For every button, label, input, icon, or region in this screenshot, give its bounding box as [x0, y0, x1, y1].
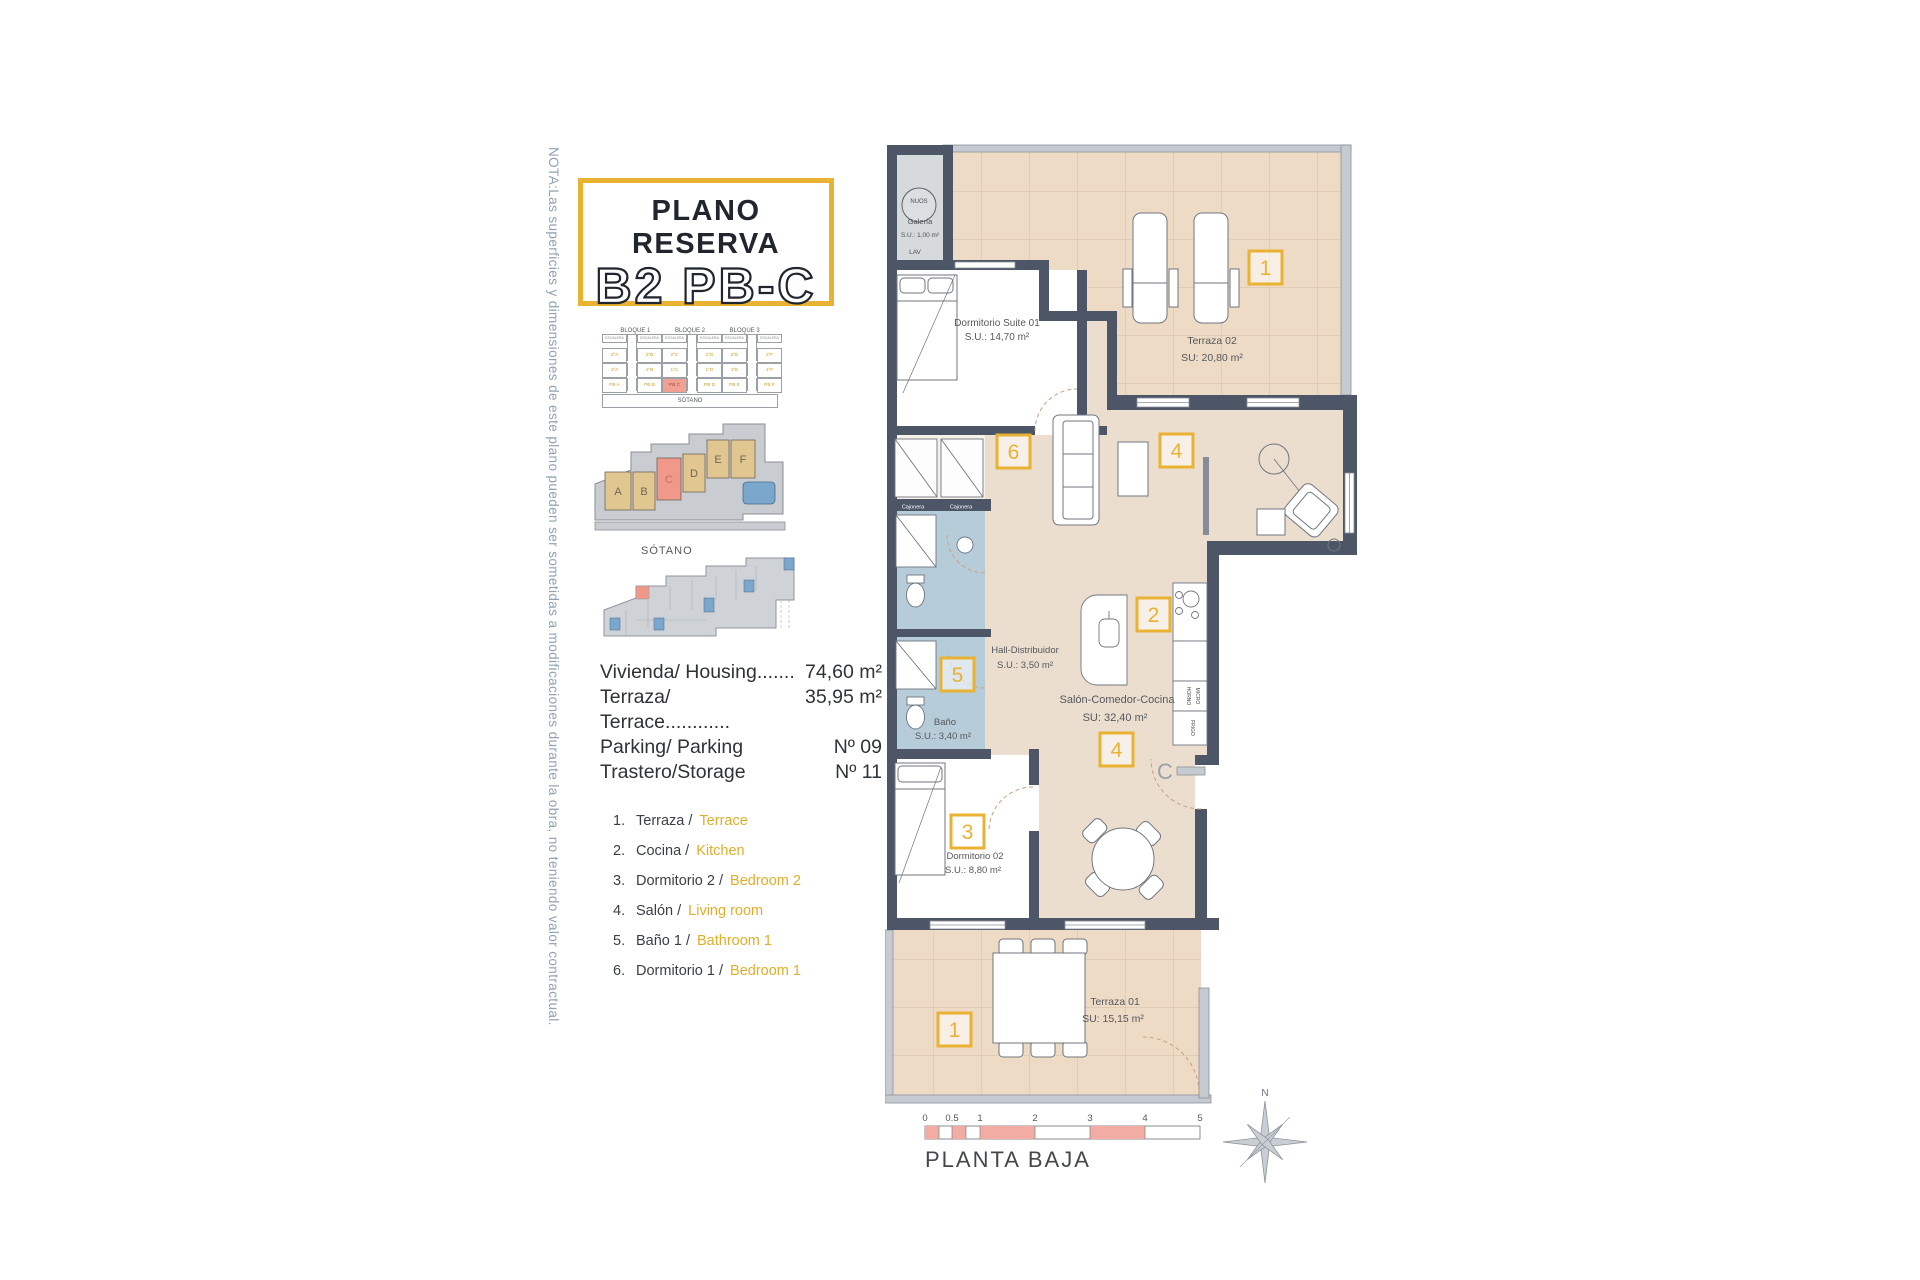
bano-area: S.U.: 3,40 m²	[915, 731, 971, 742]
svg-text:3: 3	[1087, 1113, 1092, 1124]
compass-n: N	[1261, 1088, 1268, 1099]
areas-summary: Vivienda/ Housing.......74,60 m² Terraza…	[600, 660, 882, 785]
unit-matrix-row: 2ºA 2ºB2ºC 2ºD2ºE 2ºF	[602, 348, 778, 363]
scale-bar: 0 0.5 1 2 3 4 5	[922, 1113, 1202, 1139]
basin	[957, 537, 973, 553]
suite-pillow	[900, 278, 925, 293]
cajonera-label-2: Cajonera	[950, 505, 973, 511]
unit-matrix-row: PB A PB BPB C PB DPB E PB F	[602, 378, 778, 393]
island-sink	[1099, 619, 1119, 647]
unit-b-letter: B	[640, 486, 647, 498]
badge-terraza1: 1	[938, 1013, 971, 1046]
terraza2-area: SU: 20,80 m²	[1181, 352, 1243, 364]
frigo-label: FRIGO	[1189, 720, 1195, 736]
floor-plan: NUOS Galería S.U.: 1,00 m² LAV Dormitori…	[885, 143, 1380, 1183]
legend-item-dormitorio1: 6.Dormitorio 1 /Bedroom 1	[613, 963, 801, 979]
wc-tank	[907, 575, 924, 583]
galeria-area: S.U.: 1,00 m²	[901, 232, 940, 239]
svg-text:3: 3	[962, 821, 974, 844]
horno-label: HORNO	[1185, 687, 1191, 706]
badge-bano: 5	[941, 658, 974, 691]
suite-pillow	[928, 278, 953, 293]
pool	[743, 482, 775, 504]
basement-key: SÓTANO	[596, 540, 811, 648]
galeria-brand: NUOS	[910, 199, 927, 205]
wc-bowl	[907, 705, 925, 729]
unit-e-letter: E	[714, 454, 721, 466]
legend-item-terraza: 1.Terraza /Terrace	[613, 813, 801, 829]
terraza1-name: Terraza 01	[1090, 996, 1140, 1008]
galeria-name: Galería	[908, 217, 933, 226]
salon-name: Salón-Comedor-Cocina	[1060, 694, 1176, 706]
svg-text:2: 2	[1148, 604, 1160, 627]
svg-text:6: 6	[1008, 441, 1020, 464]
badge-cocina: 2	[1137, 598, 1170, 631]
terraza2-name: Terraza 02	[1187, 335, 1237, 347]
wc-tank	[907, 697, 924, 705]
legend-item-cocina: 2.Cocina /Kitchen	[613, 843, 801, 859]
unit-matrix: BLOQUE 1 BLOQUE 2 BLOQUE 3 ESCALERA ESCA…	[602, 328, 778, 408]
hall-area: S.U.: 3,50 m²	[997, 660, 1053, 671]
terrace1-dining	[993, 939, 1087, 1057]
svg-text:1: 1	[977, 1113, 982, 1124]
floor-plan-sheet: NOTA:Las superficies y dimensiones de es…	[0, 0, 1920, 1280]
micro-label: MICRO	[1194, 688, 1200, 705]
unit-f-letter: F	[740, 454, 747, 466]
badge-dorm2: 3	[951, 815, 984, 848]
storage-highlight	[636, 586, 649, 599]
site-road-strip	[595, 522, 785, 530]
disclaimer-note: NOTA:Las superficies y dimensiones de es…	[546, 147, 561, 1157]
svg-text:1: 1	[949, 1019, 961, 1042]
bano-name: Baño	[934, 717, 956, 728]
svg-text:1: 1	[1260, 257, 1272, 280]
unit-matrix-col-headers: ESCALERA ESCALERA ESCALERA ESCALERA ESCA…	[602, 334, 778, 348]
legend-item-salon: 4.Salón /Living room	[613, 903, 801, 919]
legend-item-bano: 5.Baño 1 /Bathroom 1	[613, 933, 801, 949]
title-box: PLANO RESERVA B2 PB-C	[578, 178, 834, 306]
site-plan-key: A B C D E F	[593, 422, 798, 540]
area-row-storage: Trastero/StorageNº 11	[600, 760, 882, 785]
room-legend: 1.Terraza /Terrace 2.Cocina /Kitchen 3.D…	[613, 813, 801, 993]
svg-text:5: 5	[1197, 1113, 1202, 1124]
legend-item-dormitorio2: 3.Dormitorio 2 /Bedroom 2	[613, 873, 801, 889]
badge-suite: 6	[997, 435, 1030, 468]
cajonera-label-1: Cajonera	[902, 505, 925, 511]
sotano-row: SÓTANO	[602, 394, 778, 408]
dorm2-pillow	[898, 766, 942, 782]
hall-name: Hall-Distribuidor	[991, 645, 1059, 656]
svg-text:4: 4	[1171, 440, 1183, 463]
svg-text:0: 0	[922, 1113, 927, 1124]
coffee-table	[1118, 442, 1148, 496]
unit-c-letter: C	[665, 474, 673, 486]
badge-terraza2: 1	[1249, 251, 1282, 284]
round-table	[1092, 828, 1154, 890]
dorm2-area: S.U.: 8,80 m²	[945, 865, 1001, 876]
plan-title: PLANO RESERVA	[583, 195, 829, 261]
galeria-lav: LAV	[909, 249, 921, 256]
sotano-label: SÓTANO	[641, 544, 693, 557]
svg-text:4: 4	[1111, 739, 1123, 762]
suite-name: Dormitorio Suite 01	[954, 318, 1040, 329]
bedroom-2	[895, 763, 945, 883]
area-row-terrace: Terraza/ Terrace............35,95 m²	[600, 685, 882, 735]
svg-text:0.5: 0.5	[945, 1113, 958, 1124]
wc-bowl	[907, 583, 925, 607]
suite-area: S.U.: 14,70 m²	[965, 332, 1030, 343]
kitchen-counter	[1173, 641, 1207, 681]
compass-rose: N	[1223, 1088, 1307, 1183]
svg-text:4: 4	[1142, 1113, 1147, 1124]
basement-outline	[604, 558, 794, 636]
badge-living: 4	[1160, 434, 1193, 467]
entry-door-letter: C	[1157, 759, 1173, 784]
floor-name: PLANTA BAJA	[925, 1147, 1091, 1172]
unit-matrix-row: 1ºA 1ºB1ºC 1ºD1ºE 1ºF	[602, 363, 778, 378]
side-table	[1257, 509, 1285, 535]
badge-comedor: 4	[1100, 733, 1133, 766]
terraza1-area: SU: 15,15 m²	[1082, 1013, 1144, 1025]
unit-code: B2 PB-C	[583, 261, 829, 312]
svg-text:5: 5	[952, 664, 964, 687]
unit-d-letter: D	[690, 468, 698, 480]
area-row-housing: Vivienda/ Housing.......74,60 m²	[600, 660, 882, 685]
suite-bedroom	[897, 275, 957, 393]
tv-panel	[1203, 457, 1209, 535]
dorm2-name: Dormitorio 02	[946, 851, 1003, 862]
svg-text:2: 2	[1032, 1113, 1037, 1124]
sofa-cushions	[1063, 421, 1093, 519]
unit-a-letter: A	[614, 486, 622, 498]
terrace-table	[993, 953, 1085, 1043]
highlighted-unit-cell: PB C	[662, 378, 687, 393]
salon-area: SU: 32,40 m²	[1083, 712, 1148, 724]
area-row-parking: Parking/ ParkingNº 09	[600, 735, 882, 760]
